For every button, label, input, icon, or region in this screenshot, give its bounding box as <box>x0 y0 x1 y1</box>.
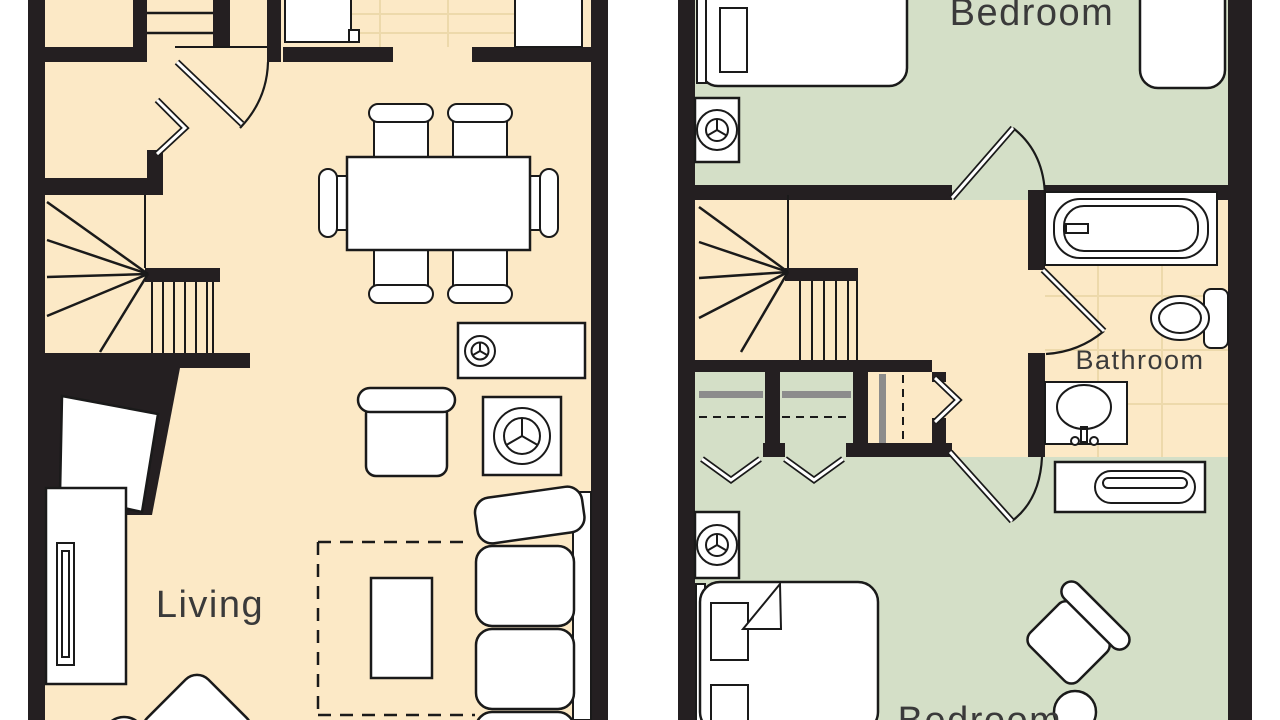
bathtub <box>1045 192 1217 265</box>
faucet <box>1066 224 1088 233</box>
coffee-table <box>371 578 432 678</box>
dining-chair <box>453 249 507 288</box>
armchair <box>358 388 455 476</box>
bedroom-top-label: Bedroom <box>950 0 1115 34</box>
ceiling-fan <box>695 512 739 578</box>
sofa-cushion <box>476 629 574 709</box>
dining-chair-back <box>319 169 337 237</box>
dining-chair <box>453 119 507 158</box>
closet-rod <box>782 391 851 398</box>
dining-chair-back <box>369 104 433 122</box>
first-floor-plan: Living <box>28 0 608 720</box>
bathroom-label: Bathroom <box>1075 345 1204 375</box>
dresser <box>1055 462 1205 512</box>
dining-chair-back <box>369 285 433 303</box>
dining-chair-back <box>448 104 512 122</box>
dining-chair <box>374 119 428 158</box>
headboard <box>697 0 706 83</box>
floorplan-image: Living <box>0 0 1280 720</box>
sectional-sofa <box>473 485 591 720</box>
ceiling-fan-icon <box>465 336 495 366</box>
dining-chair-back <box>540 169 558 237</box>
closet-rod <box>879 374 886 443</box>
kitchen-counter <box>515 0 582 47</box>
dining-table <box>347 157 530 250</box>
ceiling-fan <box>695 98 739 162</box>
refrigerator <box>285 0 351 42</box>
bed <box>700 0 907 86</box>
sofa-cushion <box>476 546 574 626</box>
sideboard <box>458 323 585 378</box>
second-floor-plan: Bedroom Bathroom <box>678 0 1252 720</box>
tv-console <box>46 488 126 684</box>
living-room-label: Living <box>156 584 264 626</box>
door-handle <box>349 30 359 42</box>
dining-chair-back <box>448 285 512 303</box>
sink <box>1045 382 1127 445</box>
nightstand <box>1140 0 1225 88</box>
closet-rod <box>699 391 763 398</box>
washer-icon <box>494 408 550 464</box>
sofa-cushion <box>476 712 574 720</box>
dining-chair <box>374 249 428 288</box>
washer-dryer <box>483 397 561 475</box>
bedroom-bottom-label: Bedroom <box>898 700 1063 720</box>
